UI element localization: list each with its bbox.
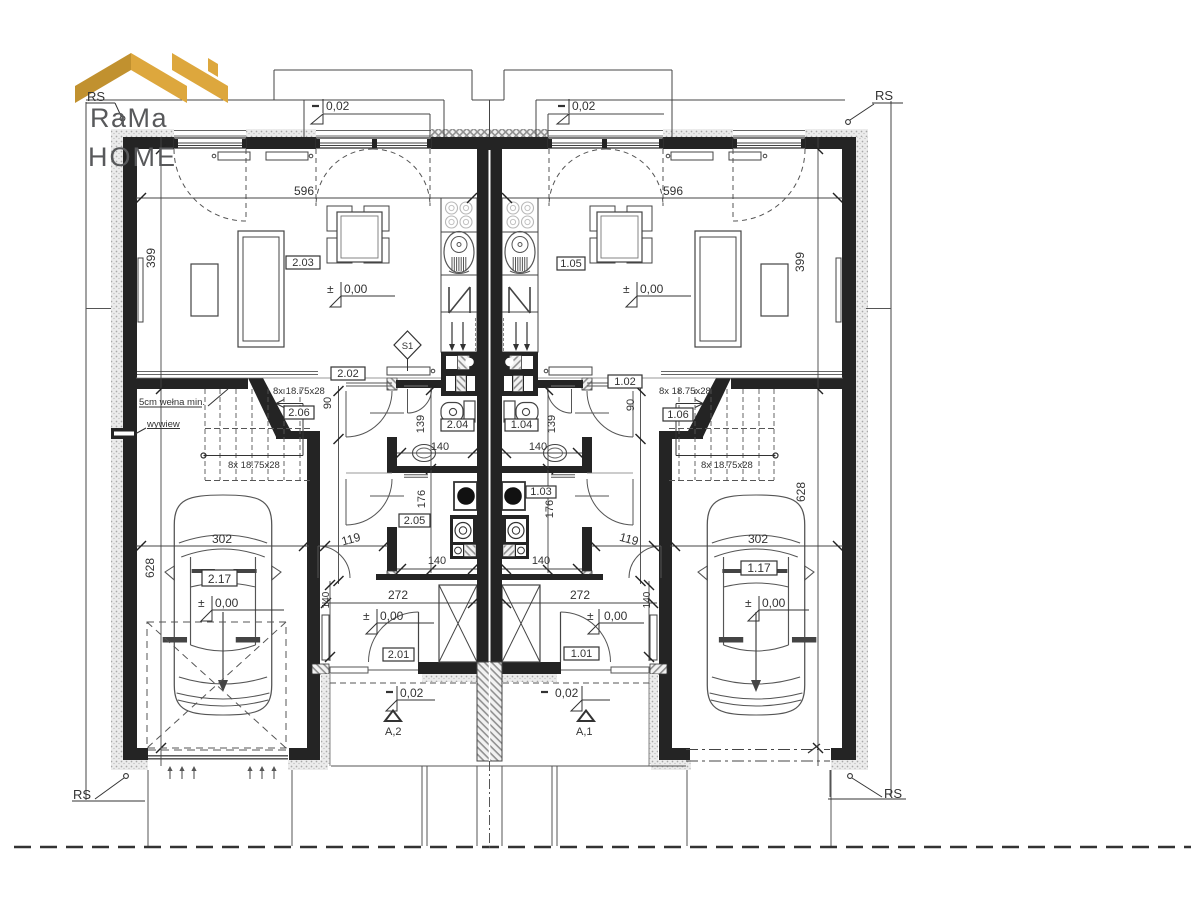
svg-text:2.03: 2.03 [292, 257, 313, 269]
svg-text:RS: RS [875, 88, 893, 103]
svg-text:RS: RS [87, 89, 105, 104]
svg-text:RS: RS [884, 786, 902, 801]
svg-text:8x 18.75x28: 8x 18.75x28 [273, 386, 325, 397]
svg-text:8x 18.75x28: 8x 18.75x28 [228, 460, 280, 471]
svg-text:628: 628 [794, 482, 808, 502]
svg-text:2.17: 2.17 [208, 572, 232, 586]
svg-text:HOME: HOME [88, 142, 177, 172]
svg-text:wywiew: wywiew [146, 419, 180, 430]
svg-text:596: 596 [663, 184, 683, 198]
svg-text:140: 140 [321, 591, 332, 608]
svg-text:±: ± [198, 596, 205, 610]
svg-text:1.03: 1.03 [530, 486, 551, 498]
svg-text:0,00: 0,00 [762, 596, 786, 610]
svg-text:302: 302 [212, 532, 232, 546]
svg-text:90: 90 [625, 399, 637, 411]
svg-text:302: 302 [748, 532, 768, 546]
svg-text:±: ± [623, 282, 630, 296]
svg-text:±: ± [587, 609, 594, 623]
svg-text:0,00: 0,00 [215, 596, 239, 610]
svg-text:0,02: 0,02 [555, 686, 579, 700]
svg-text:0,02: 0,02 [572, 99, 596, 113]
svg-text:±: ± [363, 609, 370, 623]
svg-text:0,02: 0,02 [326, 99, 350, 113]
svg-text:596: 596 [294, 184, 314, 198]
svg-text:1.02: 1.02 [614, 376, 635, 388]
svg-text:2.05: 2.05 [404, 515, 425, 527]
svg-text:RS: RS [73, 787, 91, 802]
svg-text:1.04: 1.04 [511, 419, 532, 431]
svg-text:2.04: 2.04 [447, 419, 468, 431]
svg-text:0,02: 0,02 [400, 686, 424, 700]
svg-text:90: 90 [322, 397, 334, 409]
svg-text:0,00: 0,00 [604, 609, 628, 623]
svg-text:8x 18.75x28: 8x 18.75x28 [701, 460, 753, 471]
svg-text:±: ± [327, 282, 334, 296]
svg-text:272: 272 [570, 588, 590, 602]
svg-text:RaMa: RaMa [90, 103, 168, 133]
svg-text:0,00: 0,00 [640, 282, 664, 296]
svg-text:399: 399 [144, 248, 158, 268]
svg-text:0,00: 0,00 [344, 282, 368, 296]
svg-text:628: 628 [143, 558, 157, 578]
svg-text:1.17: 1.17 [747, 561, 771, 575]
svg-text:2.06: 2.06 [288, 407, 309, 419]
svg-text:1.06: 1.06 [667, 409, 688, 421]
svg-text:1.01: 1.01 [571, 648, 592, 660]
svg-text:A,1: A,1 [576, 726, 593, 738]
svg-text:272: 272 [388, 588, 408, 602]
svg-text:2.01: 2.01 [388, 649, 409, 661]
svg-text:2.02: 2.02 [337, 368, 358, 380]
svg-text:8x 18.75x28: 8x 18.75x28 [659, 386, 711, 397]
svg-text:0,00: 0,00 [380, 609, 404, 623]
svg-text:176: 176 [416, 490, 428, 508]
svg-text:5cm wełna min.: 5cm wełna min. [139, 397, 205, 408]
svg-text:140: 140 [431, 441, 449, 453]
svg-text:1.05: 1.05 [560, 258, 581, 270]
svg-text:A,2: A,2 [385, 726, 402, 738]
svg-text:140: 140 [428, 555, 446, 567]
svg-text:140: 140 [529, 441, 547, 453]
svg-text:176: 176 [544, 500, 556, 518]
svg-text:139: 139 [415, 415, 427, 433]
svg-text:±: ± [745, 596, 752, 610]
svg-text:399: 399 [793, 252, 807, 272]
svg-text:139: 139 [546, 415, 558, 433]
svg-text:140: 140 [642, 591, 653, 608]
svg-text:140: 140 [532, 555, 550, 567]
svg-text:S1: S1 [402, 341, 414, 352]
